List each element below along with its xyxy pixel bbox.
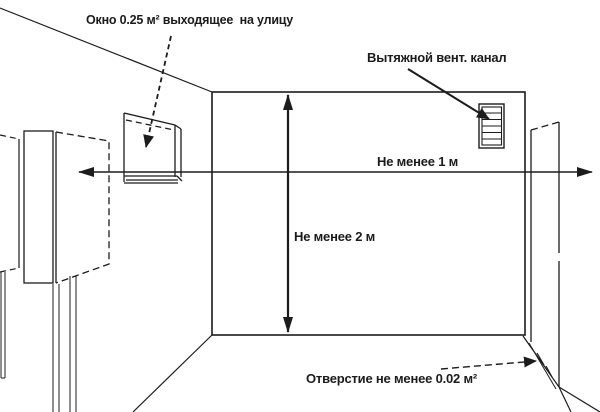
vent-pointer-arrow <box>408 69 489 119</box>
window-area-label: Окно 0.25 м² выходящее на улицу <box>86 13 293 28</box>
vent-grille-drawing <box>479 104 504 148</box>
boiler-side-face <box>24 131 53 283</box>
boiler-front-face <box>56 132 109 283</box>
diagram-canvas: Окно 0.25 м² выходящее на улицу Вытяжной… <box>0 0 600 412</box>
door-gap-hatch <box>546 366 552 377</box>
min-width-label: Не менее 1 м <box>377 154 458 169</box>
side-panel-drawing <box>0 135 19 378</box>
room-outline <box>0 8 600 412</box>
door-drawing <box>531 122 559 387</box>
floor-right-edge-inner <box>529 343 556 389</box>
opening-pointer-arrow <box>441 361 536 369</box>
vent-channel-label: Вытяжной вент. канал <box>367 50 506 65</box>
door-top-edge <box>531 122 559 130</box>
panel-top-edge <box>0 135 19 139</box>
window-depth-edge <box>175 125 181 129</box>
floor-right-edge <box>523 336 559 387</box>
window-top-edge <box>124 113 175 125</box>
room-drawing <box>0 0 600 412</box>
window-pointer-arrow <box>146 36 171 147</box>
back-wall <box>212 92 525 335</box>
boiler-drawing <box>24 131 109 412</box>
panel-bottom-edge <box>0 268 19 272</box>
floor-left-edge <box>133 335 212 412</box>
floor-opening-label: Отверстие не менее 0.02 м² <box>306 371 477 386</box>
min-height-label: Не менее 2 м <box>294 229 375 244</box>
